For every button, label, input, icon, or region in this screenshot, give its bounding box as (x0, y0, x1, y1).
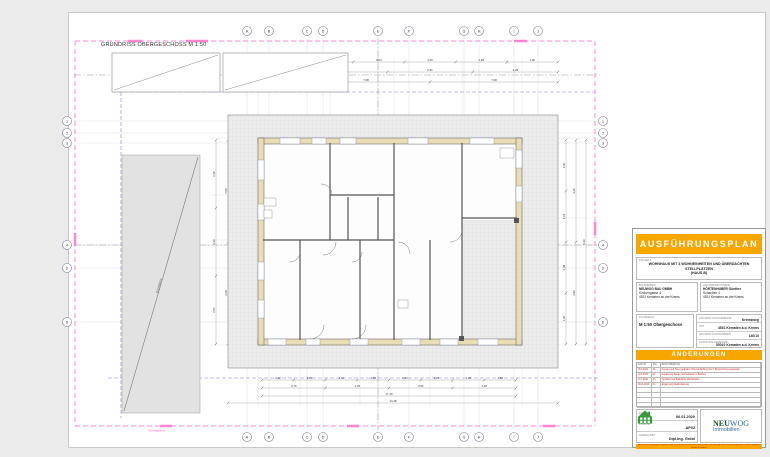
svg-text:3: 3 (66, 141, 68, 145)
svg-text:I: I (514, 29, 515, 33)
svg-text:5: 5 (66, 266, 68, 270)
svg-text:4,26: 4,26 (572, 188, 576, 194)
svg-text:2,38: 2,38 (478, 58, 484, 62)
svg-text:4: 4 (602, 243, 604, 247)
changes-banner: ÄNDERUNGEN (636, 350, 762, 360)
svg-text:6: 6 (66, 320, 68, 324)
svg-text:D: D (322, 29, 325, 33)
svg-text:1,60: 1,60 (307, 376, 313, 380)
svg-text:G: G (463, 435, 466, 439)
empty-change-row (637, 403, 761, 408)
field-cadastre: KATASTRALGEMEINDE 55010 Kematen a.d. Kre… (697, 340, 761, 347)
svg-text:4,90: 4,90 (572, 290, 576, 296)
svg-text:14,48: 14,48 (390, 399, 397, 403)
drawn-by-row: GEZEICHNET Dipl.Ing. Gröbl (637, 432, 697, 442)
svg-text:J: J (537, 29, 539, 33)
svg-text:3,64: 3,64 (562, 213, 566, 219)
neuwog-logo: NEUWOG Immobilien (700, 409, 762, 443)
svg-text:2: 2 (602, 131, 604, 135)
svg-text:2,18: 2,18 (370, 376, 376, 380)
svg-text:3: 3 (602, 141, 604, 145)
svg-text:4: 4 (66, 243, 68, 247)
svg-text:3,70: 3,70 (291, 384, 297, 388)
svg-text:Grundgrenze: Grundgrenze (148, 429, 166, 433)
project-box: PROJEKT WOHNHAUS MIT 3 WOHNEINHEITEN UND… (636, 257, 762, 280)
svg-text:2: 2 (66, 131, 68, 135)
svg-text:1: 1 (602, 119, 604, 123)
client-city: 4531 Kematen an der Krems (639, 295, 695, 299)
svg-text:I: I (514, 435, 515, 439)
svg-text:2,18: 2,18 (482, 384, 488, 388)
client-box: BAUWERBER NEUWOG BAU GMBH Kirchengasse 4… (636, 282, 698, 312)
title-block: AUSFÜHRUNGSPLAN PROJEKT WOHNHAUS MIT 3 W… (632, 228, 766, 448)
svg-text:3,64: 3,64 (376, 58, 382, 62)
svg-text:4,26: 4,26 (212, 239, 216, 245)
svg-text:1,00: 1,00 (402, 376, 408, 380)
owner-box: GRUNDEIGENTÜMER HÖRTENHUBER Günther Scha… (700, 282, 762, 312)
svg-text:7,08: 7,08 (224, 188, 228, 194)
copyright-strip: Dieser Plan ist geistiges Eigentum des P… (636, 444, 762, 449)
svg-text:2,51: 2,51 (212, 307, 216, 313)
plan-content-value: M 1:50 Obergeschoss (639, 322, 691, 327)
svg-text:H: H (478, 435, 481, 439)
svg-text:6: 6 (602, 320, 604, 324)
roof-area-left: Dachfläche (122, 155, 200, 413)
svg-text:4,26: 4,26 (513, 68, 519, 72)
svg-text:C: C (306, 435, 309, 439)
brand-text: NEUWOG Immobilien (713, 419, 749, 433)
svg-text:1,26: 1,26 (562, 315, 566, 321)
svg-text:1,53: 1,53 (497, 376, 503, 380)
plan-content-box: PLANINHALT M 1:50 Obergeschoss (636, 314, 694, 348)
owner-city: 4531 Kematen an der Krems (703, 295, 759, 299)
carport-roof-plan (112, 53, 348, 92)
svg-text:H: H (478, 29, 481, 33)
svg-text:J: J (537, 435, 539, 439)
plan-type-banner: AUSFÜHRUNGSPLAN (636, 234, 762, 254)
svg-text:3,54: 3,54 (418, 384, 424, 388)
svg-text:1,40: 1,40 (466, 376, 472, 380)
svg-text:2,38: 2,38 (562, 264, 566, 270)
site-fields: GRUNDSTÜCKSADRESSE Kremsweg ORT 4531 Kem… (696, 314, 762, 348)
building-walls (258, 138, 522, 345)
field-city: ORT 4531 Kematen a.d. Krems (697, 323, 761, 331)
svg-text:G: G (463, 29, 466, 33)
house-icon (636, 409, 654, 425)
svg-text:1,00: 1,00 (562, 162, 566, 168)
svg-text:4,33: 4,33 (355, 384, 361, 388)
svg-text:17,10: 17,10 (386, 392, 393, 396)
svg-text:1,00: 1,00 (530, 58, 536, 62)
svg-text:D: D (322, 435, 325, 439)
field-parcel: GRUNDSTÜCKSNUMMER 140/10 (697, 332, 761, 340)
svg-text:2,51: 2,51 (427, 68, 433, 72)
svg-text:1,26: 1,26 (427, 58, 433, 62)
svg-text:7,08: 7,08 (363, 78, 369, 82)
svg-text:1,87: 1,87 (434, 376, 440, 380)
svg-text:1: 1 (66, 119, 68, 123)
svg-text:9,16: 9,16 (582, 239, 586, 245)
field-address: GRUNDSTÜCKSADRESSE Kremsweg (697, 315, 761, 323)
svg-text:2,08: 2,08 (224, 290, 228, 296)
svg-text:5: 5 (602, 266, 604, 270)
project-title-line2: (HAUS-B) (639, 271, 759, 276)
svg-text:7,08: 7,08 (491, 78, 497, 82)
svg-text:1,10: 1,10 (275, 376, 281, 380)
svg-text:2,38: 2,38 (212, 171, 216, 177)
svg-text:C: C (306, 29, 309, 33)
plan-content-label: PLANINHALT (639, 316, 691, 319)
svg-text:1,10: 1,10 (339, 376, 345, 380)
project-title-line1: WOHNHAUS MIT 3 WOHNEINHEITEN UND ÜBERDAC… (639, 262, 759, 271)
drawing-title: GRUNDRISS OBERGESCHOSS M 1:50 (101, 42, 206, 48)
changes-table: DATUMIND.BESCHREIBUNG18.3.202001Fenster … (636, 362, 762, 407)
